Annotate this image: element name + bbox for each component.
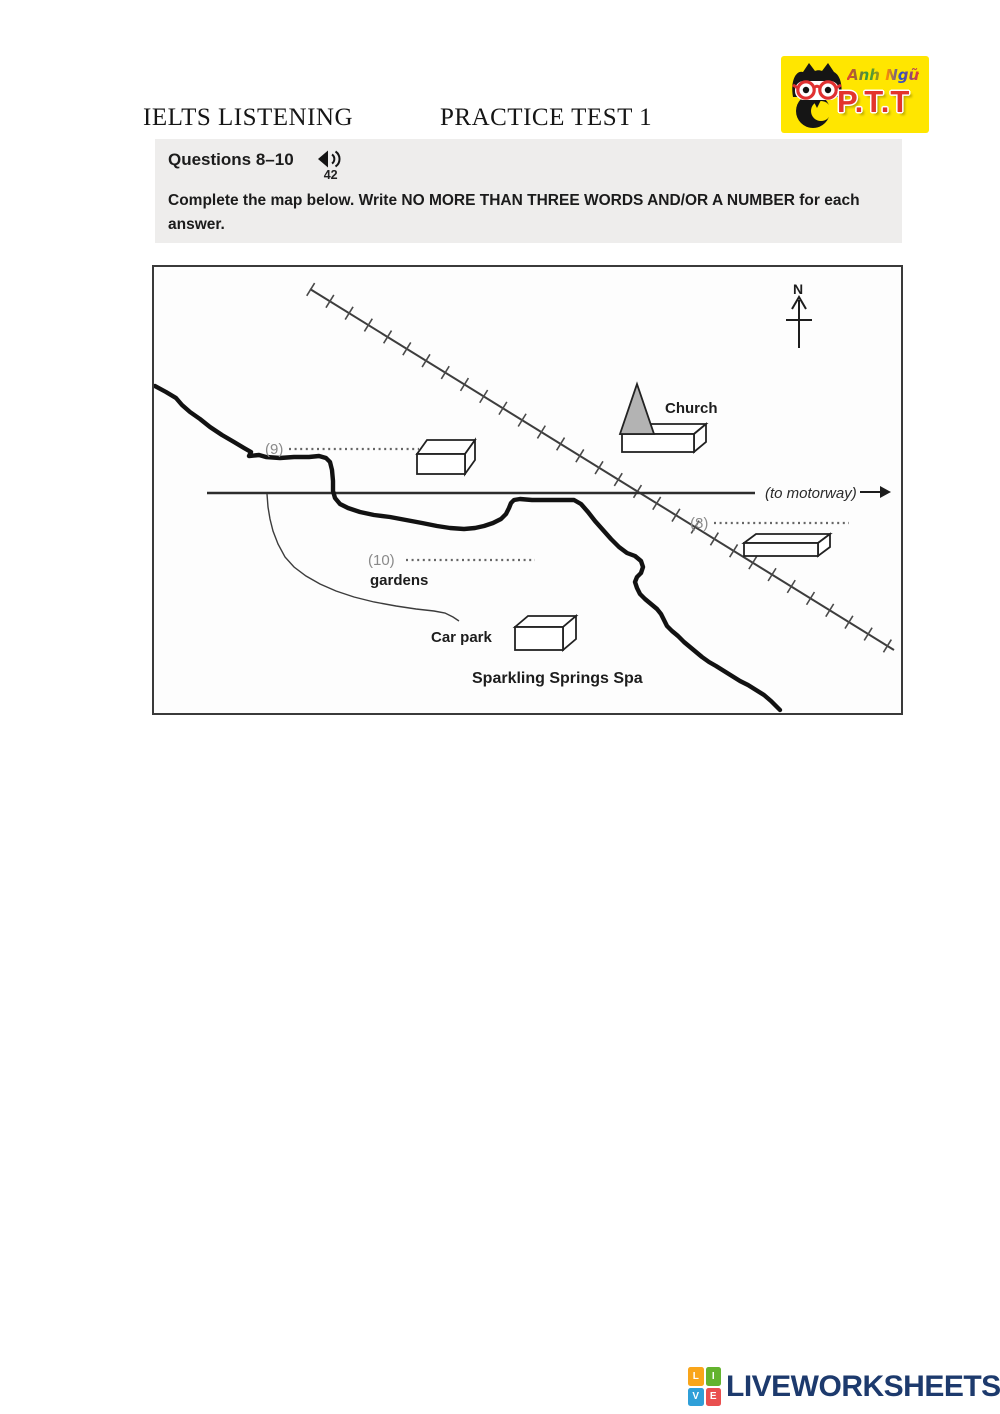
practice-test-title: PRACTICE TEST 1 [440, 104, 652, 132]
instruction-text: Complete the map below. Write NO MORE TH… [168, 189, 892, 238]
north-arrow: N [786, 281, 812, 348]
car-park-label: Car park [431, 629, 493, 646]
audio-player[interactable]: 42 [318, 150, 344, 182]
spa-label: Sparkling Springs Spa [472, 670, 643, 687]
q9-number: (9) [265, 441, 283, 458]
church-building [620, 384, 706, 452]
q8-number: (8) [690, 515, 708, 532]
instruction-bold: NO MORE THAN THREE WORDS AND/OR A NUMBER [401, 192, 795, 209]
church-label: Church [665, 400, 718, 417]
liveworksheets-wordmark: LIVEWORKSHEETS [726, 1370, 1000, 1404]
page-title: IELTS LISTENING [143, 104, 353, 132]
building-q8 [744, 534, 830, 556]
school-logo: Anh Ngữ P.T.T [781, 56, 929, 133]
questions-heading: Questions 8–10 [168, 150, 294, 170]
brand-script-text: Anh Ngữ [847, 66, 919, 84]
icon-square-e: E [706, 1388, 722, 1407]
audio-track-number: 42 [324, 168, 338, 182]
liveworksheets-icon: L I V E [688, 1367, 721, 1406]
map: N Church (9) (8) (10) [152, 265, 903, 715]
building-q9 [417, 440, 475, 474]
gardens-label: gardens [370, 572, 428, 589]
north-label: N [793, 281, 803, 297]
speaker-icon[interactable] [318, 150, 344, 168]
spa-building [515, 616, 576, 650]
church-spire [620, 384, 654, 434]
icon-square-l: L [688, 1367, 704, 1386]
question-box: Questions 8–10 42 Complete the map below… [155, 139, 902, 243]
instruction-pre: Complete the map below. Write [168, 192, 401, 209]
brand-name-text: P.T.T [837, 84, 910, 120]
icon-square-v: V [688, 1388, 704, 1407]
liveworksheets-logo[interactable]: L I V E LIVEWORKSHEETS [688, 1367, 1000, 1406]
motorway-label: (to motorway) [765, 485, 857, 502]
icon-square-i: I [706, 1367, 722, 1386]
q10-number: (10) [368, 552, 395, 569]
motorway-arrow [860, 486, 891, 498]
railway-line [310, 289, 894, 650]
